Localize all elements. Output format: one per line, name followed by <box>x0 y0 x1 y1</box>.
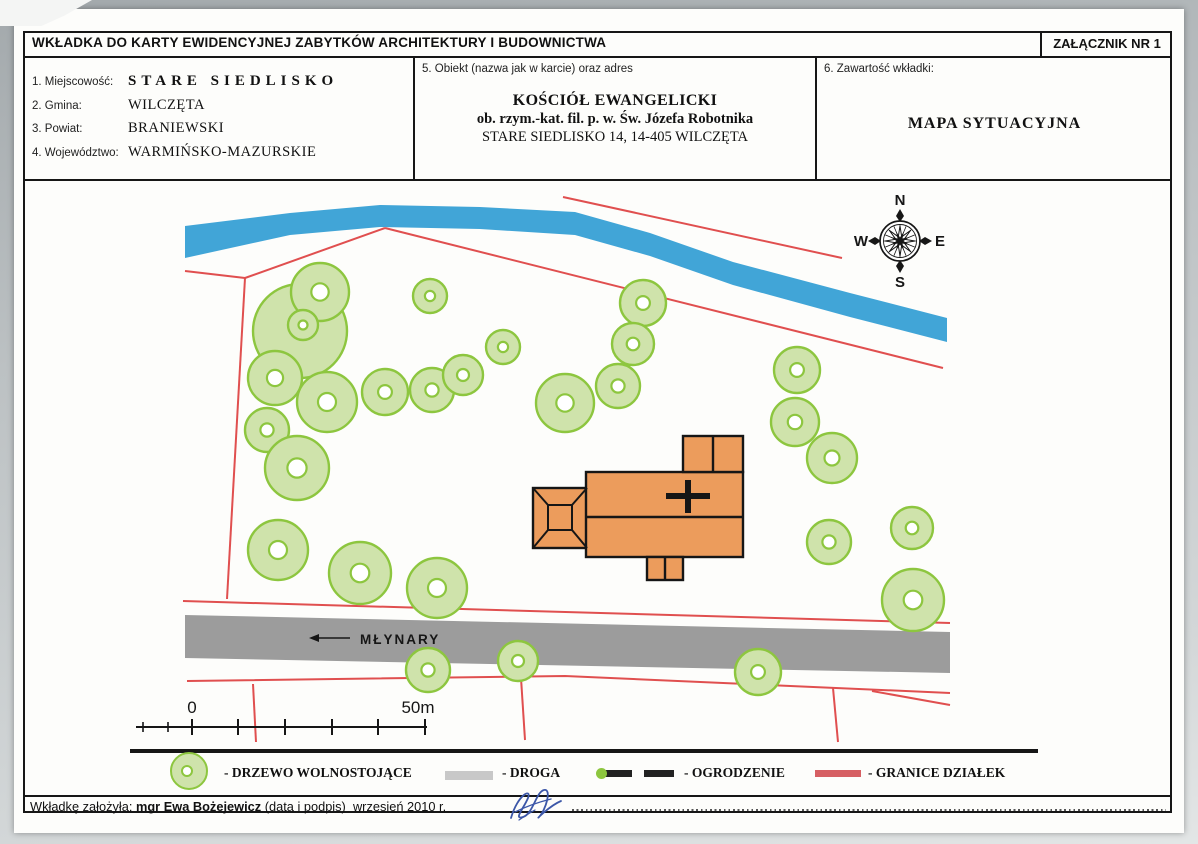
parcel-boundary-line <box>227 278 245 599</box>
site-map-svg: MŁYNARYNSWE050m <box>25 182 1170 748</box>
field-gmina-value: WILCZĘTA <box>128 97 205 114</box>
footer-divider-line <box>23 795 1172 797</box>
compass-south-label: S <box>895 274 905 291</box>
tree <box>498 641 538 681</box>
tree <box>265 436 329 500</box>
field-obiekt-label: 5. Obiekt (nazwa jak w karcie) oraz adre… <box>422 63 815 75</box>
legend-divider-line <box>130 749 1038 753</box>
footer-prefix: Wkładkę założyła: <box>30 799 132 814</box>
scale-start-label: 0 <box>187 698 196 717</box>
form-header-row: WKŁADKA DO KARTY EWIDENCYJNEJ ZABYTKÓW A… <box>23 31 1172 58</box>
tree <box>891 507 933 549</box>
insert-content-value: MAPA SYTUACYJNA <box>817 115 1172 133</box>
tree <box>362 369 408 415</box>
form-fields-row: 1. Miejscowość: STARE SIEDLISKO 2. Gmina… <box>23 58 1172 181</box>
compass-west-label: W <box>854 233 869 250</box>
church-building <box>533 436 743 580</box>
compass-north-label: N <box>895 192 906 209</box>
tree <box>771 398 819 446</box>
tree <box>297 372 357 432</box>
form-title: WKŁADKA DO KARTY EWIDENCYJNEJ ZABYTKÓW A… <box>32 35 606 50</box>
tree <box>774 347 820 393</box>
field-wojewodztwo-value: WARMIŃSKO-MAZURSKIE <box>128 144 316 161</box>
field-miejscowosc-label: 1. Miejscowość: <box>32 76 128 88</box>
road <box>185 615 950 673</box>
signature <box>505 784 583 826</box>
field-wojewodztwo-label: 4. Województwo: <box>32 147 128 159</box>
parcel-boundary-line <box>253 684 256 742</box>
tree <box>288 310 318 340</box>
field-miejscowosc-value: STARE SIEDLISKO <box>128 73 338 90</box>
footer-text: Wkładkę założyła: mgr Ewa Bożejewicz (da… <box>30 799 446 814</box>
field-gmina-label: 2. Gmina: <box>32 100 128 112</box>
tree <box>406 648 450 692</box>
tree <box>807 520 851 564</box>
tree <box>882 569 944 631</box>
legend-tree-symbol <box>170 752 208 790</box>
tree <box>735 649 781 695</box>
tree <box>807 433 857 483</box>
tree <box>248 351 302 405</box>
attachment-label: ZAŁĄCZNIK NR 1 <box>1053 36 1161 51</box>
object-dedication: ob. rzym.-kat. fil. p. w. Św. Józefa Rob… <box>415 111 815 128</box>
compass-rose-icon: NSWE <box>854 192 945 291</box>
legend-road-symbol <box>445 771 493 780</box>
parcel-boundary-line <box>521 678 525 740</box>
parcel-boundary-line <box>185 271 245 278</box>
tree <box>248 520 308 580</box>
parcel-boundary-line <box>187 676 950 693</box>
footer-note: (data i podpis) <box>265 799 346 814</box>
tree <box>413 279 447 313</box>
field-zawartosc-label: 6. Zawartość wkładki: <box>824 63 1172 75</box>
compass-east-label: E <box>935 233 945 250</box>
tree <box>620 280 666 326</box>
footer-date: wrzesień 2010 r. <box>353 799 446 814</box>
object-address: STARE SIEDLISKO 14, 14-405 WILCZĘTA <box>415 129 815 146</box>
tree <box>443 355 483 395</box>
legend-tree-symbol-hole <box>181 765 193 777</box>
tree <box>329 542 391 604</box>
tree <box>407 558 467 618</box>
scale-bar: 050m <box>136 698 435 735</box>
insert-content-cell: 6. Zawartość wkładki: MAPA SYTUACYJNA <box>817 58 1172 179</box>
object-name: KOŚCIÓŁ EWANGELICKI <box>415 92 815 110</box>
tree <box>536 374 594 432</box>
footer-author: mgr Ewa Bożejewicz <box>136 799 261 814</box>
parcel-boundary-line <box>833 688 838 742</box>
scale-end-label: 50m <box>401 698 434 717</box>
tree <box>596 364 640 408</box>
legend-label-fence: - OGRODZENIE <box>684 765 785 781</box>
legend-boundary-symbol <box>815 770 861 777</box>
legend-fence-symbol-post <box>596 768 607 779</box>
attachment-cell: ZAŁĄCZNIK NR 1 <box>1040 31 1172 56</box>
legend-fence-symbol-bar <box>644 770 674 777</box>
signature-dotted-line <box>572 809 1166 811</box>
tree <box>612 323 654 365</box>
location-cell: 1. Miejscowość: STARE SIEDLISKO 2. Gmina… <box>23 58 415 179</box>
tree <box>486 330 520 364</box>
field-powiat-value: BRANIEWSKI <box>128 120 224 137</box>
road-destination-label: MŁYNARY <box>360 632 440 647</box>
legend-label-tree: - DRZEWO WOLNOSTOJĄCE <box>224 765 412 781</box>
field-powiat-label: 3. Powiat: <box>32 123 128 135</box>
object-cell: 5. Obiekt (nazwa jak w karcie) oraz adre… <box>415 58 817 179</box>
scanned-record-card: WKŁADKA DO KARTY EWIDENCYJNEJ ZABYTKÓW A… <box>0 0 1198 844</box>
legend-label-road: - DROGA <box>502 765 560 781</box>
legend-label-boundary: - GRANICE DZIAŁEK <box>868 765 1005 781</box>
